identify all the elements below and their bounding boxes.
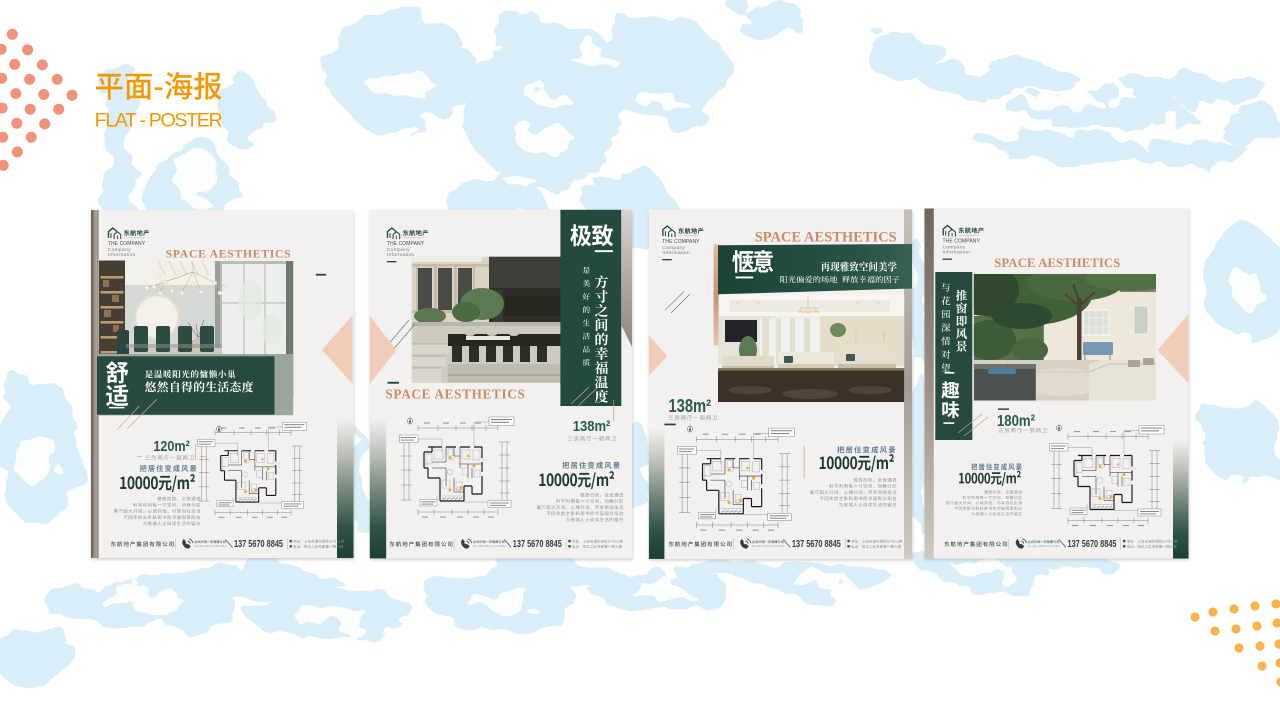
svg-text:SPACE AESTHETICS: SPACE AESTHETICS [755, 229, 897, 245]
svg-text:FLAT - POSTER: FLAT - POSTER [95, 110, 223, 132]
svg-text:SPACE AESTHETICS: SPACE AESTHETICS [166, 247, 291, 260]
svg-text:138m²: 138m² [669, 396, 712, 416]
svg-text:120m²: 120m² [153, 438, 190, 455]
svg-text:138m²: 138m² [573, 418, 611, 435]
svg-text:180m²: 180m² [997, 413, 1035, 430]
svg-text:SPACE AESTHETICS: SPACE AESTHETICS [385, 386, 525, 401]
svg-text:SPACE AESTHETICS: SPACE AESTHETICS [994, 256, 1120, 270]
